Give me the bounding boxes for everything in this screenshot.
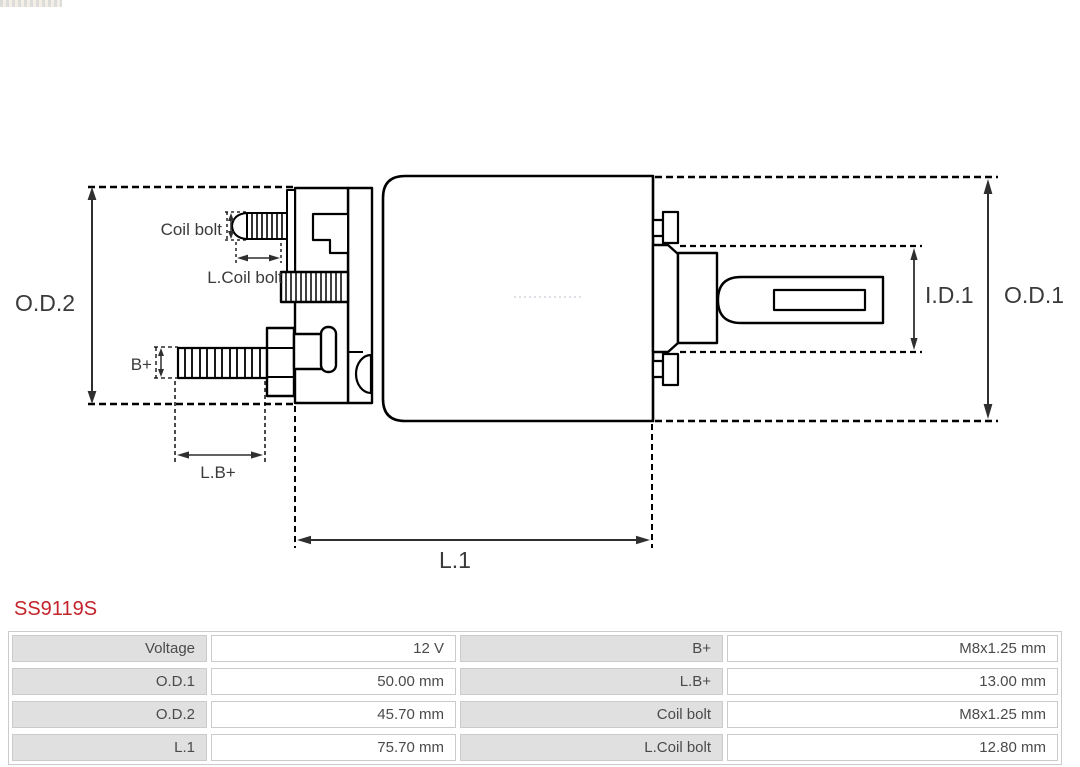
spec-value-cell: 50.00 mm — [211, 668, 456, 695]
spec-label-cell: L.1 — [12, 734, 207, 761]
spec-label-cell: O.D.1 — [12, 668, 207, 695]
logo-fragment — [0, 0, 62, 7]
product-code-link[interactable]: SS9119S — [14, 598, 97, 621]
solenoid-can — [383, 176, 653, 421]
spec-value-cell: M8x1.25 mm — [727, 701, 1058, 728]
spec-value-cell: 45.70 mm — [211, 701, 456, 728]
terminal-bottom-head — [663, 354, 678, 385]
solenoid-body — [178, 176, 883, 421]
rear-flange — [653, 245, 678, 352]
coil-bolt-tip — [232, 213, 247, 239]
l-coil-bolt-label: L.Coil bolt — [207, 268, 283, 287]
l1-label: L.1 — [439, 547, 471, 573]
b-plus-spacer — [294, 334, 322, 369]
spec-value-cell: 13.00 mm — [727, 668, 1058, 695]
spec-label-cell: Voltage — [12, 635, 207, 662]
b-plus-label: B+ — [131, 355, 152, 374]
spec-label-cell: L.B+ — [460, 668, 723, 695]
mount-flange-strip — [287, 190, 295, 272]
terminal-bottom-neck — [653, 361, 663, 377]
spec-value-cell: 75.70 mm — [211, 734, 456, 761]
lb-plus-label: L.B+ — [200, 463, 236, 482]
spec-table: Voltage 12 V B+ M8x1.25 mm O.D.1 50.00 m… — [8, 631, 1062, 765]
od2-label: O.D.2 — [15, 290, 75, 316]
terminal-top-head — [663, 212, 678, 243]
technical-drawing: O.D.2 O.D.1 I.D.1 L.1 Coil bolt L.Coil b… — [0, 0, 1080, 582]
spec-label-cell: B+ — [460, 635, 723, 662]
od1-label: O.D.1 — [1004, 282, 1064, 308]
id1-label: I.D.1 — [925, 282, 974, 308]
b-plus-washer — [321, 327, 336, 372]
plunger-slot — [774, 290, 865, 310]
spec-label-cell: L.Coil bolt — [460, 734, 723, 761]
spec-label-cell: O.D.2 — [12, 701, 207, 728]
spec-value-cell: M8x1.25 mm — [727, 635, 1058, 662]
b-plus-nut — [267, 328, 294, 396]
spec-label-cell: Coil bolt — [460, 701, 723, 728]
spec-value-cell: 12.80 mm — [727, 734, 1058, 761]
rear-plate — [678, 253, 717, 343]
spec-value-cell: 12 V — [211, 635, 456, 662]
coil-bolt-label: Coil bolt — [161, 220, 223, 239]
terminal-top-neck — [653, 220, 663, 236]
